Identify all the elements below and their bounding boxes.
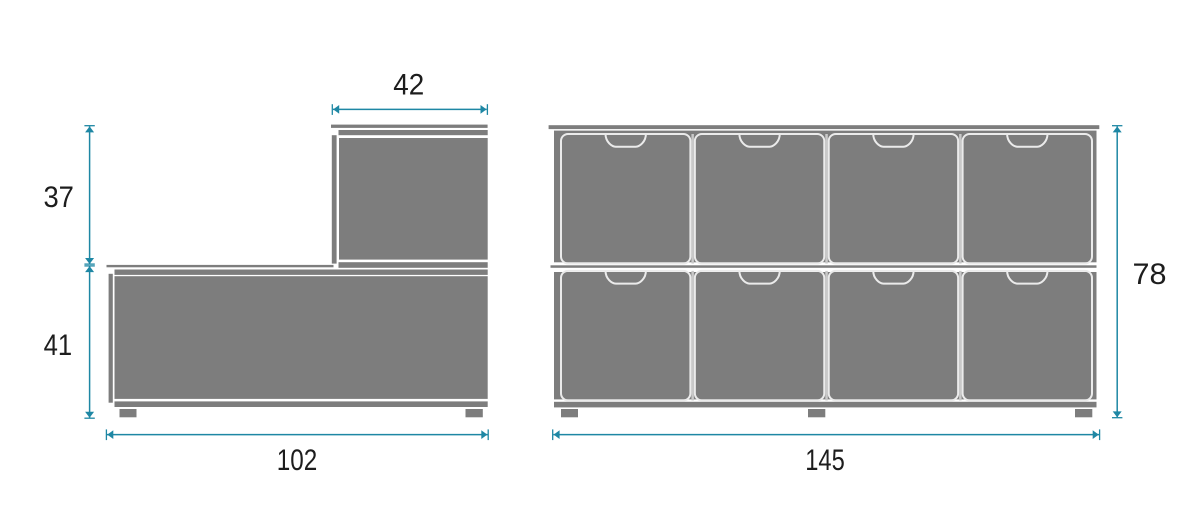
svg-text:41: 41 <box>44 329 73 362</box>
svg-text:145: 145 <box>805 444 845 477</box>
svg-text:37: 37 <box>43 181 74 214</box>
svg-text:42: 42 <box>393 69 424 102</box>
svg-text:78: 78 <box>1133 258 1167 291</box>
svg-text:102: 102 <box>277 444 318 477</box>
